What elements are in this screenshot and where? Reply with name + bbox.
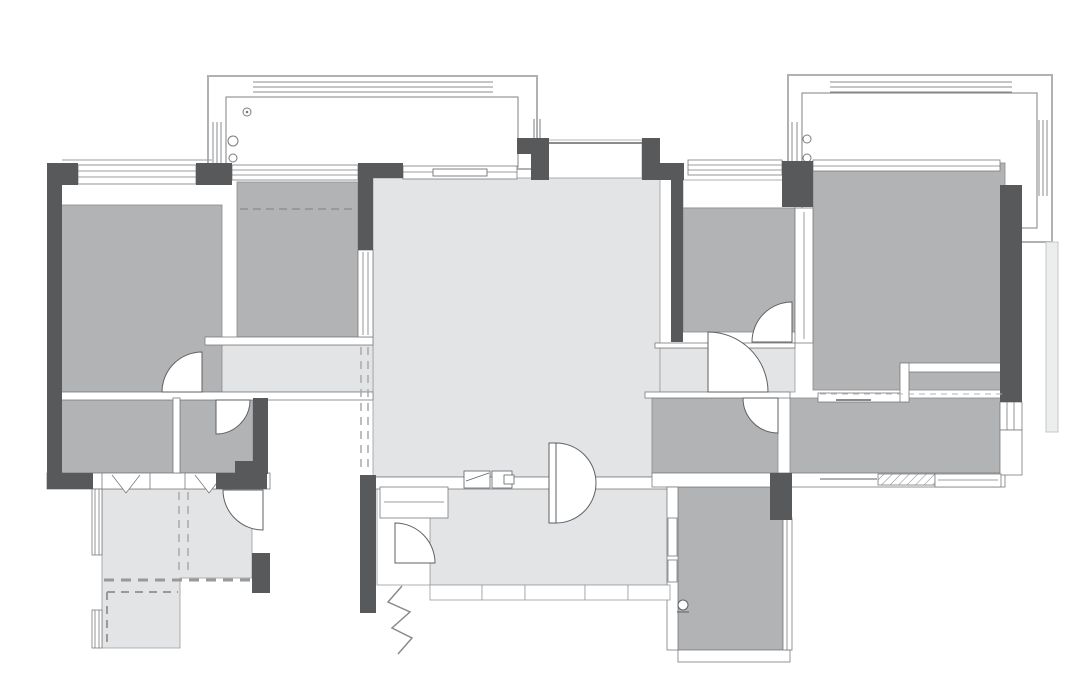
- entry-door-leaf: [549, 443, 556, 523]
- door-stop-icon: [678, 600, 688, 610]
- break-line-zigzag: [388, 586, 412, 654]
- washer-icon: [229, 154, 237, 162]
- room-kitchen: [678, 487, 783, 650]
- floor-plan: [0, 0, 1080, 697]
- sliding-panel: [668, 560, 677, 582]
- balcony-top-left-inner: [226, 97, 518, 167]
- wall: [642, 138, 660, 180]
- sliding-panel: [668, 518, 677, 556]
- step-band: [585, 585, 628, 600]
- wall-thin: [678, 650, 790, 662]
- step-band: [482, 585, 525, 600]
- wall: [782, 161, 813, 207]
- balcony-side-shadow: [1046, 242, 1058, 432]
- window: [688, 160, 782, 175]
- wall: [770, 473, 792, 520]
- wall: [517, 138, 549, 154]
- room-living-dining: [373, 178, 660, 477]
- room-bedroom-right: [790, 398, 1005, 475]
- wall-thin: [1000, 430, 1022, 475]
- floor-plan-page: [0, 0, 1080, 697]
- wall: [47, 185, 62, 473]
- wall: [47, 473, 93, 489]
- window: [92, 610, 102, 648]
- entry-hardware: [464, 471, 490, 488]
- wall-partition: [900, 363, 909, 402]
- window: [1000, 402, 1022, 430]
- drain-icon: [803, 154, 811, 162]
- hatched-sill: [878, 474, 935, 485]
- wall: [1000, 185, 1022, 402]
- room-cloakroom: [237, 182, 358, 337]
- wall: [47, 163, 78, 185]
- step-band: [430, 585, 482, 600]
- wall: [671, 180, 683, 342]
- wall-thin: [205, 337, 373, 345]
- window: [358, 250, 373, 337]
- room-bath-left: [57, 398, 173, 473]
- wall: [252, 553, 270, 593]
- wall-thin: [57, 392, 373, 400]
- window: [813, 160, 1000, 171]
- entry-alcove: [548, 140, 642, 180]
- wall-thin: [645, 392, 790, 398]
- wall: [358, 178, 373, 250]
- wall: [358, 163, 403, 178]
- wall-thin: [173, 398, 180, 473]
- window: [783, 518, 792, 650]
- window: [92, 489, 102, 555]
- window: [78, 165, 196, 184]
- room-master-bedroom: [813, 163, 1005, 390]
- drain-icon: [803, 135, 811, 143]
- room-bath-top-shower: [683, 180, 795, 208]
- drain-icon-dot: [246, 111, 249, 114]
- fixture-box: [504, 475, 514, 484]
- washer-icon: [228, 136, 238, 146]
- wall: [253, 398, 268, 474]
- room-hallway: [205, 345, 373, 392]
- sill-panel: [935, 474, 1001, 487]
- wall: [196, 163, 232, 185]
- wall: [216, 473, 267, 489]
- window: [232, 165, 358, 180]
- window-detail: [433, 169, 487, 176]
- step-band: [628, 585, 670, 600]
- wall: [658, 163, 684, 180]
- step-band: [525, 585, 585, 600]
- wall: [531, 154, 549, 180]
- wall-partition: [900, 363, 1005, 372]
- wall: [360, 475, 376, 613]
